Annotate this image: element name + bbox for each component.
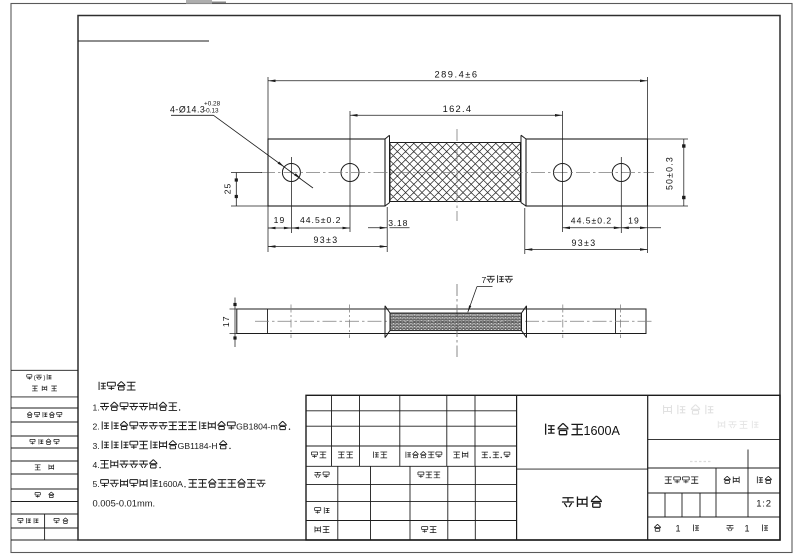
svg-text:162.4: 162.4: [443, 104, 473, 114]
svg-text:93±3: 93±3: [313, 235, 338, 245]
svg-text:1600A: 1600A: [584, 424, 621, 438]
svg-text:289.4±6: 289.4±6: [434, 69, 478, 79]
svg-text:1: 1: [744, 524, 749, 534]
svg-text:GB1184-H: GB1184-H: [178, 441, 218, 451]
svg-text:4.: 4.: [93, 460, 100, 470]
svg-text:GB1804-m: GB1804-m: [236, 422, 278, 432]
svg-text:): ): [43, 375, 45, 382]
svg-text:17: 17: [221, 316, 231, 328]
svg-text:19: 19: [628, 215, 640, 225]
svg-text:0.005-0.01mm.: 0.005-0.01mm.: [93, 498, 156, 508]
svg-text:2.: 2.: [93, 422, 100, 432]
svg-text:5.: 5.: [93, 479, 100, 489]
svg-text:1.: 1.: [93, 402, 100, 412]
svg-text:7: 7: [482, 275, 487, 285]
svg-text:19: 19: [274, 215, 286, 225]
svg-text:+0.28: +0.28: [204, 100, 221, 107]
svg-text:50±0.3: 50±0.3: [665, 156, 675, 190]
svg-text:93±3: 93±3: [571, 238, 596, 248]
svg-text:1:2: 1:2: [756, 499, 772, 510]
svg-text:44.5±0.2: 44.5±0.2: [300, 215, 341, 225]
svg-text:4-Ø14.3: 4-Ø14.3: [170, 105, 205, 115]
svg-text:44.5±0.2: 44.5±0.2: [571, 215, 612, 225]
svg-text:3.: 3.: [93, 441, 100, 451]
svg-text:-0.13: -0.13: [204, 108, 219, 115]
svg-text:3.18: 3.18: [388, 218, 408, 228]
svg-text:1: 1: [675, 524, 680, 534]
svg-text:1600A: 1600A: [158, 479, 183, 489]
svg-text:25: 25: [223, 183, 233, 195]
